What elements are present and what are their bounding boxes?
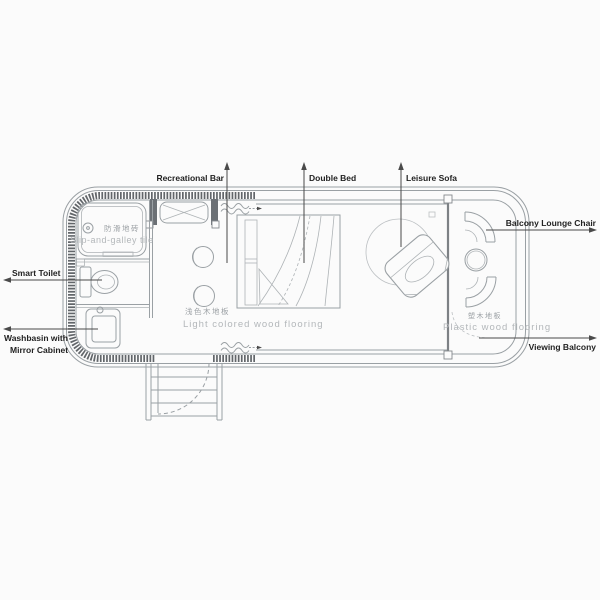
balcony-divider <box>444 195 452 359</box>
chair-bottom-seat-arc <box>466 277 478 289</box>
label-balcony-lounge-chair: Balcony Lounge Chair <box>506 218 597 228</box>
shell-outline-outer <box>63 187 529 367</box>
toilet-bowl-inner <box>98 275 115 289</box>
leisure-sofa <box>366 212 453 301</box>
label-double-bed: Double Bed <box>309 173 356 183</box>
vent-wave-2 <box>221 348 249 353</box>
entry-door <box>158 363 209 414</box>
label-viewing-balcony: Viewing Balcony <box>529 342 597 352</box>
label-recreational-bar: Recreational Bar <box>156 173 224 183</box>
floor-plan-drawing: Recreational Bar Double Bed Leisure Sofa… <box>0 0 600 600</box>
smart-toilet <box>77 259 119 297</box>
entry-stairs <box>146 363 222 420</box>
vent-arrow-icon <box>257 346 262 349</box>
bed-blanket-curve-dashed <box>278 216 310 306</box>
bathroom <box>76 200 153 348</box>
arrow-right-icon <box>589 335 597 341</box>
toilet-cistern <box>80 267 91 297</box>
arrow-up-icon <box>301 162 307 170</box>
label-leisure-sofa: Leisure Sofa <box>406 173 457 183</box>
floor-text-bathroom-en: Slip-and-galley tile <box>70 235 154 245</box>
bar-stools <box>193 247 215 307</box>
floor-text-bathroom-cn: 防滑地砖 <box>104 223 140 233</box>
chair-top-seat-arc <box>465 230 477 242</box>
bed-frame <box>237 215 340 308</box>
arrow-left-icon <box>3 277 11 283</box>
divider-post-top <box>444 195 452 203</box>
bed-blanket-curve-2 <box>296 216 321 306</box>
washbasin <box>86 307 120 348</box>
toilet-bowl <box>91 271 118 294</box>
balcony-lounge-chair-bottom <box>466 277 496 307</box>
window-vent-bottom <box>221 343 262 354</box>
vent-wave-1 <box>221 204 249 209</box>
table-inner <box>467 251 485 269</box>
label-washbasin-line1: Washbasin with <box>4 333 68 343</box>
floor-text-balcony-cn: 塑木地板 <box>468 311 502 320</box>
floor-text-interior-en: Light colored wood flooring <box>183 319 324 330</box>
vent-wave-1 <box>221 343 249 348</box>
leaders <box>3 162 597 341</box>
sofa-chaise <box>381 231 452 301</box>
bar-stool-1-back <box>193 248 197 266</box>
wall-control-panel <box>429 212 435 217</box>
chair-bottom-inner-arc <box>466 277 487 298</box>
bed-blanket-curve-1 <box>258 216 300 306</box>
balcony-round-table <box>465 249 487 271</box>
toilet-flush-button <box>77 259 85 266</box>
floor-text-interior-cn: 浅色木地板 <box>185 306 230 316</box>
divider-post-bottom <box>444 351 452 359</box>
arrow-right-icon <box>589 227 597 233</box>
double-bed <box>237 215 340 308</box>
outer-shell <box>63 187 529 367</box>
shower-drain-dot <box>87 227 90 230</box>
arrow-up-icon <box>224 162 230 170</box>
bar-niche-post-right <box>212 221 219 228</box>
arrow-left-icon <box>3 326 11 332</box>
shell-outline-mid <box>67 191 526 364</box>
arrow-up-icon <box>398 162 404 170</box>
floor-material-texts: 防滑地砖 Slip-and-galley tile 浅色木地板 Light co… <box>70 223 551 333</box>
bar-stool-2-back <box>194 287 198 305</box>
floor-plan-canvas: Recreational Bar Double Bed Leisure Sofa… <box>0 0 600 600</box>
balcony-lounge-chair-top <box>465 212 495 242</box>
bed-blanket-curve-3 <box>325 216 334 306</box>
bed-headboard <box>245 220 257 305</box>
sofa-chaise-body <box>381 231 452 301</box>
label-washbasin-line2: Mirror Cabinet <box>10 345 68 355</box>
floor-text-balcony-en: Plastic wood flooring <box>443 322 551 333</box>
chair-top-inner-arc <box>465 221 486 242</box>
table-outer <box>465 249 487 271</box>
vent-arrow-icon <box>257 207 262 210</box>
door-swing-arc <box>158 363 209 414</box>
recreational-bar <box>146 199 219 228</box>
vent-wave-2 <box>221 209 249 214</box>
label-smart-toilet: Smart Toilet <box>12 268 61 278</box>
shower-drain <box>83 223 93 233</box>
